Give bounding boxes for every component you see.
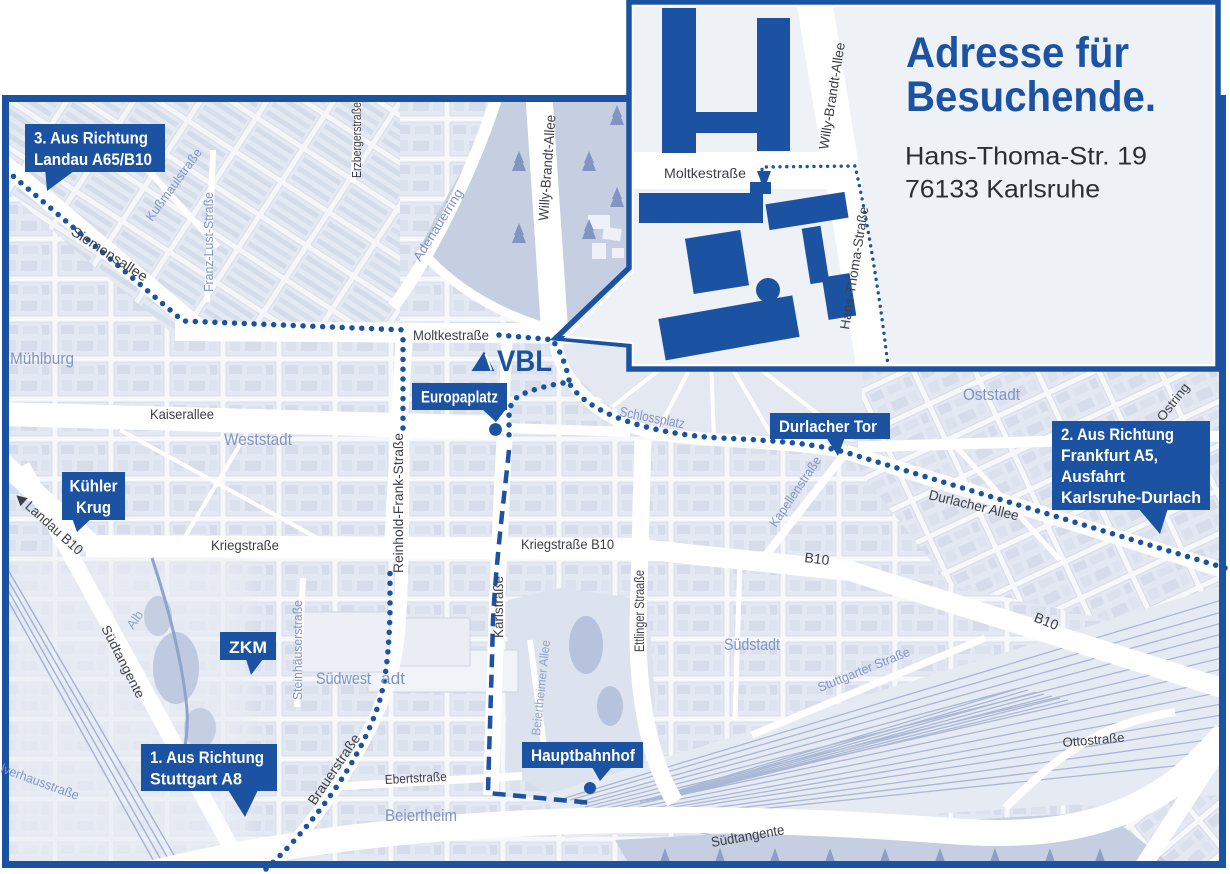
svg-text:Landau A65/B10: Landau A65/B10	[34, 150, 152, 169]
svg-text:Südwest: Südwest	[316, 669, 371, 688]
svg-text:VBL: VBL	[497, 345, 552, 378]
svg-text:Europaplatz: Europaplatz	[421, 388, 498, 407]
svg-text:Kriegstraße B10: Kriegstraße B10	[521, 536, 614, 552]
svg-text:Mühlburg: Mühlburg	[10, 349, 74, 368]
svg-text:Besuchende.: Besuchende.	[906, 73, 1156, 121]
svg-text:Moltkestraße: Moltkestraße	[413, 327, 489, 343]
svg-text:Stuttgart A8: Stuttgart A8	[150, 769, 242, 788]
svg-text:Hans-Thoma-Str. 19: Hans-Thoma-Str. 19	[905, 143, 1147, 171]
svg-text:Steinhäuserstraße: Steinhäuserstraße	[290, 600, 305, 700]
svg-text:Ettlinger Straaße: Ettlinger Straaße	[631, 570, 647, 652]
svg-text:Hauptbahnhof: Hauptbahnhof	[531, 746, 635, 765]
svg-text:Karlsruhe-Durlach: Karlsruhe-Durlach	[1061, 488, 1201, 507]
svg-text:B10: B10	[804, 549, 831, 568]
svg-text:Weststadt: Weststadt	[224, 430, 292, 449]
svg-text:ZKM: ZKM	[229, 638, 267, 657]
svg-text:Oststadt: Oststadt	[963, 385, 1020, 404]
svg-text:Durlacher Tor: Durlacher Tor	[779, 417, 877, 436]
svg-text:Südstadt: Südstadt	[724, 635, 780, 654]
svg-text:Krug: Krug	[76, 498, 111, 517]
svg-text:Frankfurt A5,: Frankfurt A5,	[1061, 446, 1158, 465]
svg-text:3. Aus Richtung: 3. Aus Richtung	[34, 128, 148, 147]
svg-text:Kühler: Kühler	[70, 476, 118, 495]
svg-text:1. Aus Richtung: 1. Aus Richtung	[150, 748, 264, 767]
svg-text:Erzbergerstraße: Erzbergerstraße	[349, 102, 364, 178]
svg-text:Kriegstraße: Kriegstraße	[211, 537, 279, 553]
svg-text:Ausfahrt: Ausfahrt	[1061, 467, 1125, 486]
svg-text:Karlstraße: Karlstraße	[490, 576, 506, 638]
svg-text:Adresse für: Adresse für	[906, 29, 1129, 77]
svg-text:Moltkestraße: Moltkestraße	[664, 166, 746, 181]
svg-text:2. Aus Richtung: 2. Aus Richtung	[1061, 425, 1174, 444]
svg-text:Beiertheim: Beiertheim	[385, 806, 457, 825]
svg-text:Kaiserallee: Kaiserallee	[150, 406, 214, 422]
svg-text:Reinhold-Frank-Straße: Reinhold-Frank-Straße	[390, 433, 406, 573]
svg-text:76133 Karlsruhe: 76133 Karlsruhe	[905, 176, 1100, 204]
svg-text:adt: adt	[381, 669, 405, 688]
svg-text:Franz-Lust-Straße: Franz-Lust-Straße	[201, 192, 216, 292]
